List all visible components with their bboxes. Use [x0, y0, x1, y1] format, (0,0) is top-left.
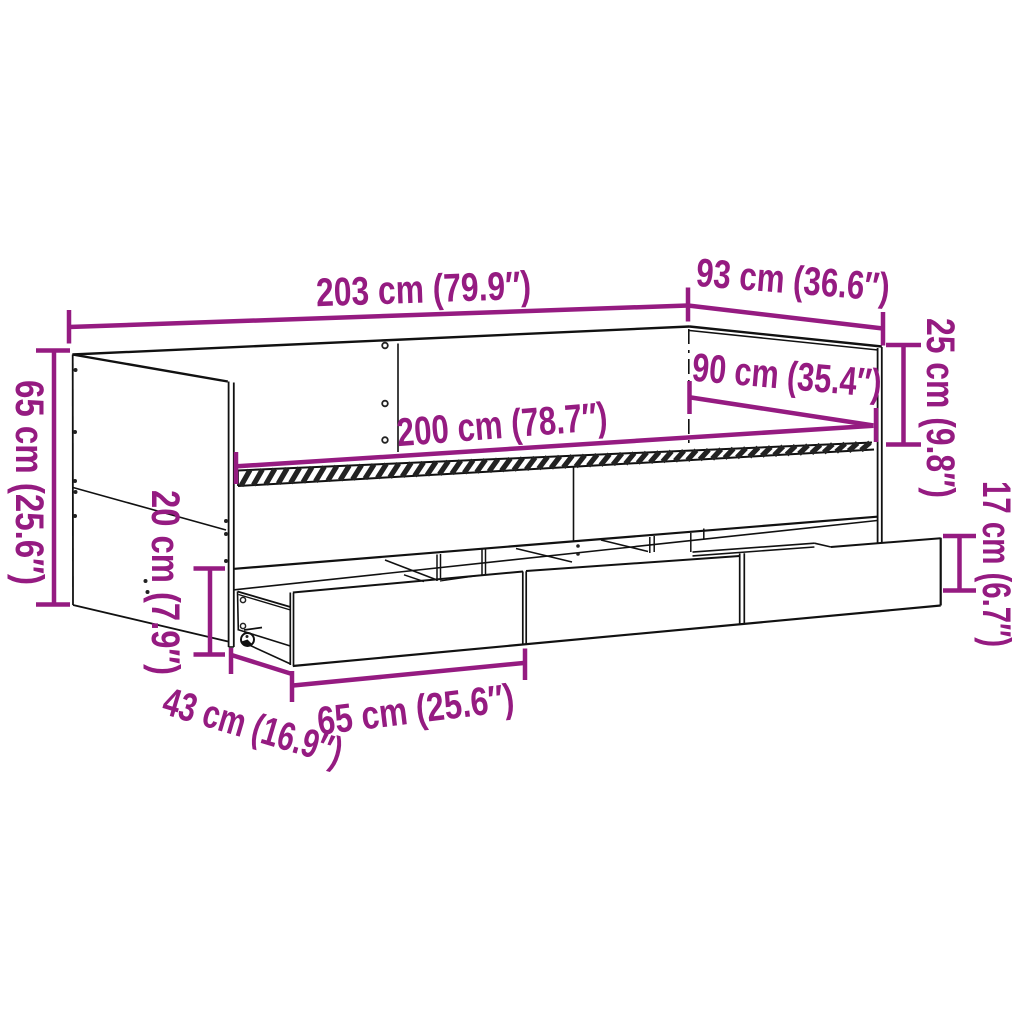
svg-text:20 cm (7.9″): 20 cm (7.9″): [143, 490, 187, 675]
svg-text:203 cm (79.9″): 203 cm (79.9″): [315, 264, 531, 315]
svg-text:17 cm (6.7″): 17 cm (6.7″): [974, 481, 1018, 647]
svg-text:65 cm (25.6″): 65 cm (25.6″): [7, 380, 51, 585]
svg-text:25 cm (9.8″): 25 cm (9.8″): [918, 318, 962, 498]
